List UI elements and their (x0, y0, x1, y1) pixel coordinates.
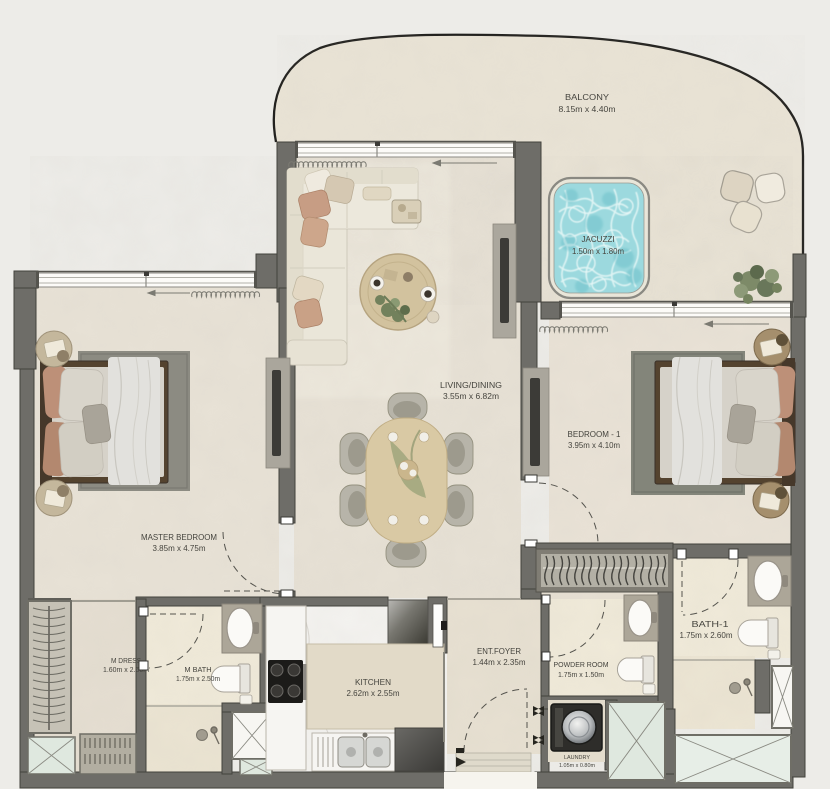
svg-text:BATH-1: BATH-1 (692, 620, 730, 629)
svg-text:M DRESS: M DRESS (111, 656, 141, 665)
svg-text:2.62m x 2.55m: 2.62m x 2.55m (347, 689, 400, 698)
svg-text:LAUNDRY: LAUNDRY (564, 755, 590, 761)
svg-text:KITCHEN: KITCHEN (355, 678, 391, 687)
svg-text:BALCONY: BALCONY (565, 93, 610, 102)
svg-text:1.75m x 1.50m: 1.75m x 1.50m (558, 670, 604, 679)
svg-text:POWDER ROOM: POWDER ROOM (554, 660, 609, 669)
svg-text:M BATH: M BATH (185, 665, 212, 674)
svg-text:1.44m x 2.35m: 1.44m x 2.35m (473, 658, 526, 667)
svg-text:1.05m x 0.80m: 1.05m x 0.80m (559, 763, 595, 769)
svg-text:1.50m x 1.80m: 1.50m x 1.80m (572, 247, 624, 256)
svg-text:1.75m x 2.50m: 1.75m x 2.50m (176, 674, 220, 683)
svg-text:JACUZZI: JACUZZI (582, 235, 615, 244)
svg-text:1.75m x 2.60m: 1.75m x 2.60m (680, 631, 733, 640)
svg-text:3.85m x 4.75m: 3.85m x 4.75m (153, 544, 206, 553)
svg-text:3.55m x 6.82m: 3.55m x 6.82m (443, 392, 499, 401)
svg-text:8.15m x 4.40m: 8.15m x 4.40m (559, 105, 616, 114)
svg-text:ENT.FOYER: ENT.FOYER (477, 647, 521, 656)
svg-text:3.95m x 4.10m: 3.95m x 4.10m (568, 441, 620, 450)
svg-text:BEDROOM - 1: BEDROOM - 1 (568, 430, 621, 439)
svg-text:LIVING/DINING: LIVING/DINING (440, 381, 502, 390)
svg-text:MASTER BEDROOM: MASTER BEDROOM (141, 533, 217, 542)
